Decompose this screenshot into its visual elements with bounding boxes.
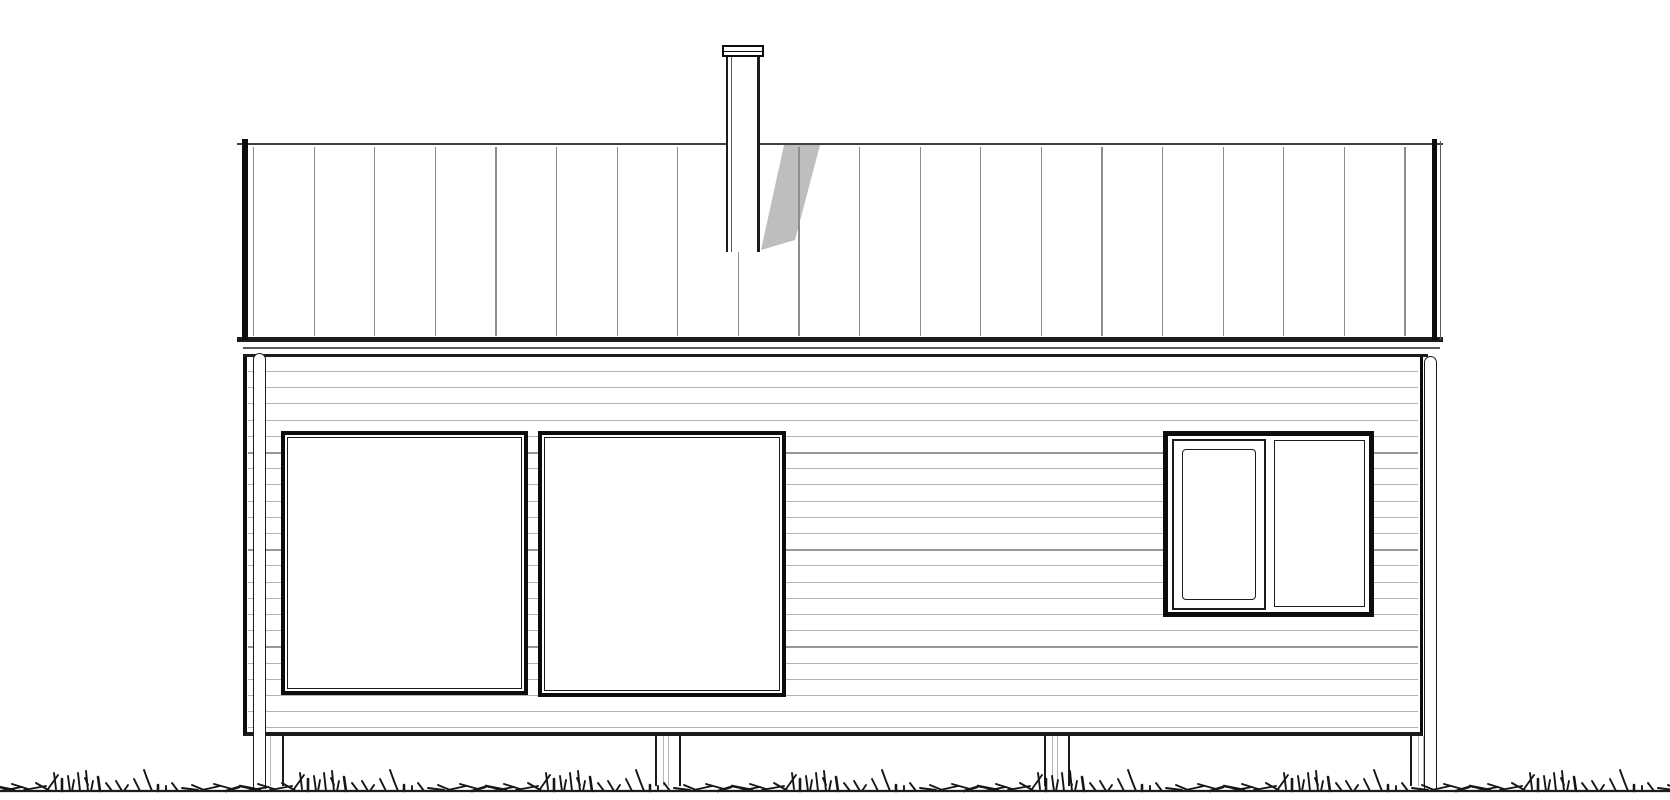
roof-seam-line [980, 147, 981, 336]
grass-stroke [694, 786, 712, 790]
grass-stroke [1186, 786, 1204, 790]
casement-sash-frame [1172, 439, 1266, 610]
grass-stroke [144, 770, 148, 781]
grass-stroke [300, 773, 302, 789]
grass-stroke [1336, 783, 1342, 791]
siding-lap-line [248, 695, 1418, 696]
grass-stroke [148, 781, 152, 791]
grass-stroke [1488, 784, 1504, 789]
post-face-line [1418, 736, 1419, 786]
grass-stroke [438, 785, 450, 790]
grass-stroke [1302, 780, 1304, 791]
grass-stroke [1242, 784, 1258, 789]
grass-stroke [792, 773, 794, 789]
grass-stroke [472, 787, 485, 791]
roof-seam-line [1162, 147, 1163, 336]
grass-stroke [172, 783, 178, 791]
grass-stroke [1008, 786, 1030, 790]
grass-stroke [1500, 786, 1522, 790]
grass-stroke [85, 778, 88, 785]
grass-stroke [1132, 781, 1136, 791]
grass-stroke [1610, 779, 1616, 791]
grass-stroke [1658, 788, 1670, 790]
grass-stroke [1075, 781, 1077, 791]
grass-stroke [352, 783, 358, 791]
grass-stroke [1512, 783, 1526, 791]
grass-stroke [1315, 778, 1318, 785]
roof-seam-line [314, 147, 315, 336]
roof-eave-line [237, 337, 1443, 342]
grass-stroke [428, 788, 444, 790]
grass-stroke [318, 780, 320, 791]
grass-stroke [1574, 777, 1576, 791]
casement-sash-inner [1182, 449, 1256, 600]
grass-stroke [528, 783, 542, 791]
roof-seam-line [1344, 147, 1345, 336]
roof-seam-line [253, 147, 254, 336]
grass-stroke [0, 786, 14, 790]
grass-stroke [738, 787, 760, 791]
grass-stroke [24, 786, 46, 790]
grass-stroke [836, 777, 838, 791]
siding-lap-line [248, 420, 1418, 421]
siding-lap-line [248, 711, 1418, 712]
grass-stroke [48, 775, 58, 789]
roof-rake-right-thin-line [1440, 141, 1441, 340]
grass-stroke [394, 781, 398, 791]
grass-stroke [1648, 783, 1654, 791]
grass-stroke [418, 783, 424, 791]
grass-stroke [1620, 770, 1624, 781]
grass-stroke [1108, 785, 1112, 791]
siding-lap-line [248, 403, 1418, 404]
roof-seam-line [920, 147, 921, 336]
grass-stroke [380, 779, 386, 791]
grass-stroke [516, 786, 538, 790]
grass-stroke [810, 780, 812, 791]
grass-stroke [1562, 771, 1564, 791]
grass-stroke [1166, 788, 1182, 790]
grass-stroke [1567, 781, 1569, 791]
grass-stroke [940, 786, 958, 790]
foundation-post [1044, 736, 1070, 786]
grass-stroke [226, 787, 239, 791]
grass-stroke [1308, 773, 1310, 791]
grass-stroke [331, 778, 334, 785]
grass-stroke [486, 786, 506, 790]
grass-stroke [270, 786, 292, 790]
grass-stroke [1354, 785, 1358, 791]
grass-stroke [344, 777, 346, 791]
grass-stroke [460, 784, 478, 789]
grass-stroke [1082, 777, 1084, 791]
grass-stroke [570, 773, 572, 791]
post-face-line [1052, 736, 1053, 786]
roof-seam-line [1041, 147, 1042, 336]
grass-stroke [324, 773, 326, 791]
grass-stroke [684, 785, 696, 790]
grass-stroke [332, 771, 334, 791]
grass-stroke [540, 775, 550, 789]
post-face-line [663, 736, 664, 786]
grass-stroke [816, 773, 818, 791]
roof-seam-line [1223, 147, 1224, 336]
grass-stroke [337, 781, 339, 791]
grass-stroke [1544, 776, 1546, 791]
grass-stroke [1070, 771, 1072, 791]
grass-stroke [1561, 778, 1564, 785]
post-face-line [1057, 736, 1058, 786]
grass-stroke [1230, 787, 1252, 791]
grass-stroke [608, 781, 614, 791]
roof-seam-line [859, 147, 860, 336]
casement-window-right [1163, 431, 1374, 617]
roof-seam-line [1404, 147, 1405, 336]
grass-stroke [78, 773, 80, 791]
grass-stroke [1176, 785, 1188, 790]
grass-stroke [1444, 784, 1462, 789]
grass-stroke [930, 785, 942, 790]
grass-stroke [1278, 775, 1288, 789]
grass-stroke [910, 783, 916, 791]
grass-stroke [1298, 776, 1300, 791]
grass-stroke [564, 780, 566, 791]
grass-stroke [862, 785, 866, 791]
grass-stroke [1224, 786, 1244, 790]
grass-stroke [1210, 787, 1223, 791]
grass-stroke [1554, 773, 1556, 791]
grass-stroke [68, 776, 70, 791]
grass-stroke [1156, 783, 1162, 791]
grass-stroke [786, 775, 796, 789]
grass-stroke [54, 773, 56, 789]
grass-stroke [1266, 783, 1280, 791]
grass-stroke [598, 783, 604, 791]
grass-stroke [1328, 777, 1330, 791]
grass-stroke [1364, 779, 1370, 791]
grass-stroke [1118, 779, 1124, 791]
siding-lap-line [248, 371, 1418, 372]
grass-stroke [674, 788, 690, 790]
grass-stroke [1038, 773, 1040, 789]
grass-stroke [72, 780, 74, 791]
grass-stroke [86, 771, 88, 791]
grass-stroke [314, 776, 316, 791]
siding-lap-line [248, 387, 1418, 388]
grass-stroke [774, 783, 788, 791]
fixed-pane-frame [1274, 440, 1365, 607]
grass-stroke [844, 783, 850, 791]
grass-stroke [504, 784, 520, 789]
grass-stroke [1548, 780, 1550, 791]
roof-seam-line [435, 147, 436, 336]
grass-stroke [282, 783, 296, 791]
grass-stroke [116, 781, 122, 791]
grass-stroke [294, 775, 304, 789]
foundation-post [655, 736, 681, 786]
grass-stroke [124, 785, 128, 791]
grass-stroke [1524, 775, 1534, 789]
roof-rake-left-edge [242, 139, 248, 340]
grass-stroke [636, 770, 640, 781]
grass-stroke [583, 781, 585, 791]
grass-stroke [978, 786, 998, 790]
grass-stroke [616, 785, 620, 791]
grass-stroke [1592, 781, 1598, 791]
post-face-line [668, 736, 669, 786]
siding-lap-line [248, 727, 1418, 728]
grass-stroke [492, 787, 514, 791]
grass-stroke [1600, 785, 1604, 791]
roof-seam-line [556, 147, 557, 336]
grass-stroke [1020, 783, 1034, 791]
grass-stroke [202, 786, 220, 790]
grass-stroke [640, 781, 644, 791]
roof-rake-right-edge [1432, 139, 1437, 340]
grass-stroke [370, 785, 374, 791]
downspout [253, 353, 266, 789]
grass-stroke [182, 788, 198, 790]
grass-stroke [1284, 773, 1286, 789]
grass-stroke [872, 779, 878, 791]
picture-window-left [281, 431, 528, 695]
post-face-line [270, 736, 271, 786]
grass-stroke [1321, 781, 1323, 791]
downspout [1424, 356, 1437, 789]
grass-stroke [0, 787, 22, 791]
picture-window-center [538, 431, 786, 697]
grass-stroke [577, 778, 580, 785]
grass-stroke [829, 781, 831, 791]
window-inner-frame [544, 437, 780, 691]
grass-stroke [1128, 770, 1132, 781]
grass-stroke [36, 783, 50, 791]
grass-stroke [1374, 770, 1378, 781]
grass-stroke [192, 785, 204, 790]
grass-stroke [1476, 787, 1498, 791]
grass-stroke [718, 787, 731, 791]
grass-stroke [362, 781, 368, 791]
roof-seam-line [374, 147, 375, 336]
grass-stroke [1624, 781, 1628, 791]
grass-stroke [1402, 783, 1408, 791]
grass-stroke [996, 784, 1012, 789]
grass-stroke [964, 787, 977, 791]
grass-stroke [390, 770, 394, 781]
grass-stroke [1470, 786, 1490, 790]
house-elevation-drawing [0, 0, 1670, 800]
grass-stroke [732, 786, 752, 790]
grass-stroke [952, 784, 970, 789]
grass-stroke [1198, 784, 1216, 789]
chimney-flue-inner-line [731, 56, 732, 252]
grass-stroke [1456, 787, 1469, 791]
grass-stroke [98, 777, 100, 791]
grass-stroke [750, 784, 766, 789]
roof-seam-line [495, 147, 496, 336]
grass-stroke [706, 784, 724, 789]
grass-stroke [1530, 773, 1532, 789]
grass-stroke [886, 781, 890, 791]
grass-stroke [626, 779, 632, 791]
roof-seam-line [1283, 147, 1284, 336]
roof-seam-line [617, 147, 618, 336]
grass-stroke [824, 771, 826, 791]
grass-stroke [1378, 781, 1382, 791]
roof-ridge-line [237, 143, 1443, 146]
grass-stroke [1346, 781, 1352, 791]
grass-stroke [1316, 771, 1318, 791]
chimney-cap-band-line [724, 51, 762, 52]
grass-stroke [1582, 783, 1588, 791]
grass-stroke [1090, 783, 1096, 791]
window-inner-frame [287, 437, 522, 689]
grass-stroke [12, 784, 28, 789]
grass-stroke [1254, 786, 1276, 790]
grass-stroke [578, 771, 580, 791]
roof-seam-line [1101, 147, 1102, 336]
grass-stroke [854, 781, 860, 791]
grass-stroke [806, 776, 808, 791]
grass-stroke [1100, 781, 1106, 791]
grass-stroke [214, 784, 232, 789]
grass-stroke [1032, 775, 1042, 789]
roof-seam-line [677, 147, 678, 336]
grass-stroke [91, 781, 93, 791]
grass-stroke [134, 779, 140, 791]
grass-stroke [448, 786, 466, 790]
grass-stroke [762, 786, 784, 790]
grass-stroke [560, 776, 562, 791]
grass-stroke [920, 788, 936, 790]
grass-stroke [882, 770, 886, 781]
roof-seam-line [798, 147, 799, 336]
grass-stroke [546, 773, 548, 789]
fascia-line [243, 347, 1440, 349]
grass-stroke [590, 777, 592, 791]
grass-stroke [984, 787, 1006, 791]
grass-stroke [106, 783, 112, 791]
grass-stroke [823, 778, 826, 785]
